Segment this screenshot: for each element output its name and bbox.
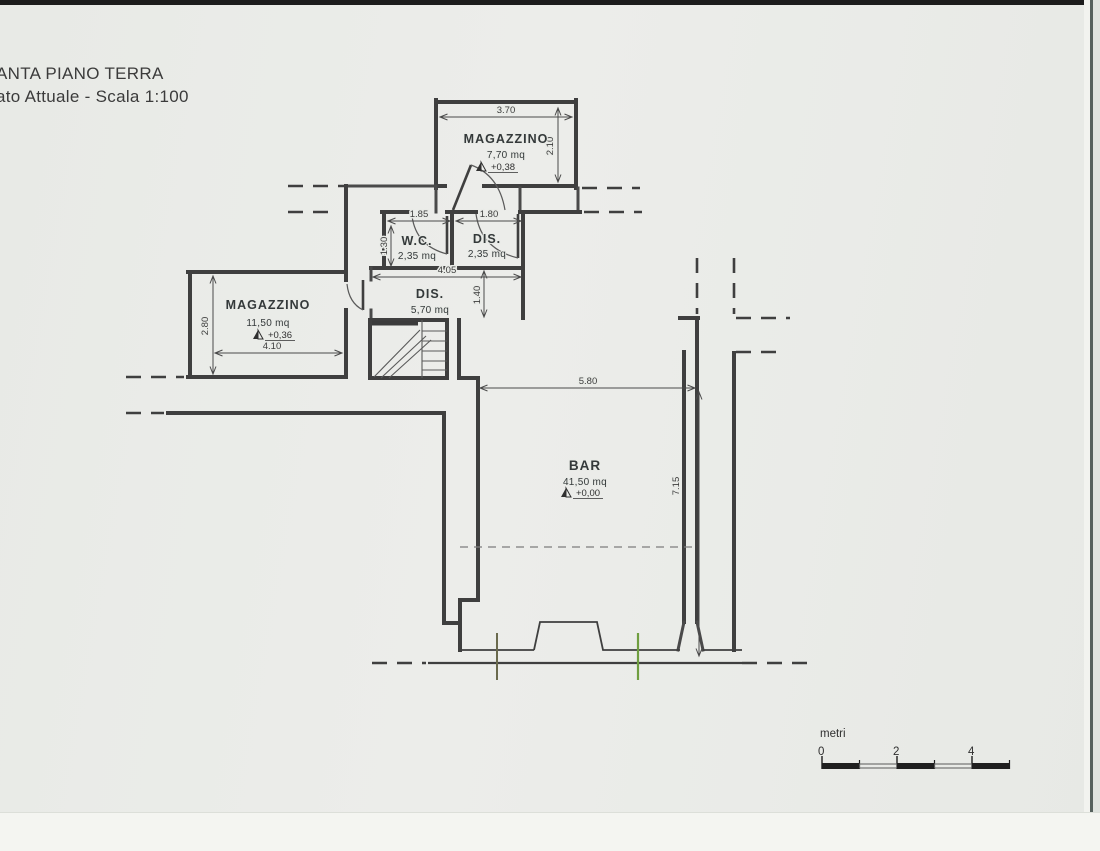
room-area: 7,70 mq	[487, 150, 525, 161]
scale-segment-filled	[897, 763, 935, 769]
scale-segment-open	[860, 764, 898, 768]
room-magazzino-left: MAGAZZINO 11,50 mq +0,36	[226, 298, 311, 341]
scan-edge-bottom	[0, 812, 1100, 851]
room-name: MAGAZZINO	[226, 298, 311, 312]
room-name: W.C.	[401, 234, 432, 248]
door-magazzino-left	[347, 280, 363, 310]
dim-label-5-80: 5.80	[579, 376, 598, 387]
dim-label-2-80: 2.80	[200, 317, 211, 336]
scan-edge-right-pale	[1093, 0, 1100, 850]
room-dis-small: DIS. 2,35 mq	[468, 232, 506, 260]
storefront	[428, 622, 742, 680]
room-bar: BAR 41,50 mq +0,00	[561, 458, 607, 499]
room-wc: W.C. 2,35 mq	[398, 234, 436, 262]
room-area: 11,50 mq	[246, 318, 289, 329]
scale-bar: metri 0 2 4	[818, 728, 1010, 769]
title-block: ANTA PIANO TERRA ato Attuale - Scala 1:1…	[0, 64, 189, 106]
scale-tick-label-2: 2	[893, 746, 899, 758]
room-name: DIS.	[416, 287, 444, 301]
walls	[168, 100, 734, 650]
level-marker: +0,38	[476, 162, 518, 173]
room-name: MAGAZZINO	[464, 132, 549, 146]
level-marker: +0,36	[253, 330, 295, 341]
plan-title: ANTA PIANO TERRA	[0, 64, 164, 83]
room-area: 41,50 mq	[563, 477, 607, 488]
dim-label-3-70: 3.70	[497, 105, 516, 116]
scale-tick-label-0: 0	[818, 746, 824, 758]
scale-segment-filled	[822, 763, 860, 769]
room-name: BAR	[569, 458, 601, 473]
scale-bar-label: metri	[820, 728, 846, 740]
dim-label-7-15: 7.15	[671, 477, 682, 496]
level-marker: +0,00	[561, 488, 603, 499]
scanned-floor-plan-page: ANTA PIANO TERRA ato Attuale - Scala 1:1…	[0, 0, 1100, 850]
dim-label-4-10: 4.10	[263, 341, 282, 352]
dim-label-1-85: 1.85	[410, 209, 429, 220]
dim-label-1-30: 1.30	[379, 237, 390, 256]
scale-segment-open	[935, 764, 973, 768]
dim-label-1-40: 1.40	[472, 286, 483, 305]
room-area: 2,35 mq	[398, 251, 436, 262]
dim-label-4-05: 4.05	[438, 265, 457, 276]
level-value: +0,00	[576, 488, 600, 499]
plan-subtitle: ato Attuale - Scala 1:100	[0, 87, 189, 106]
floor-plan-drawing: ANTA PIANO TERRA ato Attuale - Scala 1:1…	[0, 0, 1100, 850]
room-area: 2,35 mq	[468, 249, 506, 260]
room-area: 5,70 mq	[411, 305, 449, 316]
scale-segment-filled	[972, 763, 1010, 769]
room-name: DIS.	[473, 232, 501, 246]
level-value: +0,36	[268, 330, 292, 341]
dim-label-1-80: 1.80	[480, 209, 499, 220]
room-dis-corridor: DIS. 5,70 mq	[411, 287, 449, 316]
scan-edge-top	[0, 0, 1100, 5]
staircase	[372, 320, 447, 378]
dimensions: 3.70 2.10 1.85 1.80 1.30 4.05 1.40 2.80 …	[200, 105, 699, 656]
level-value: +0,38	[491, 162, 515, 173]
